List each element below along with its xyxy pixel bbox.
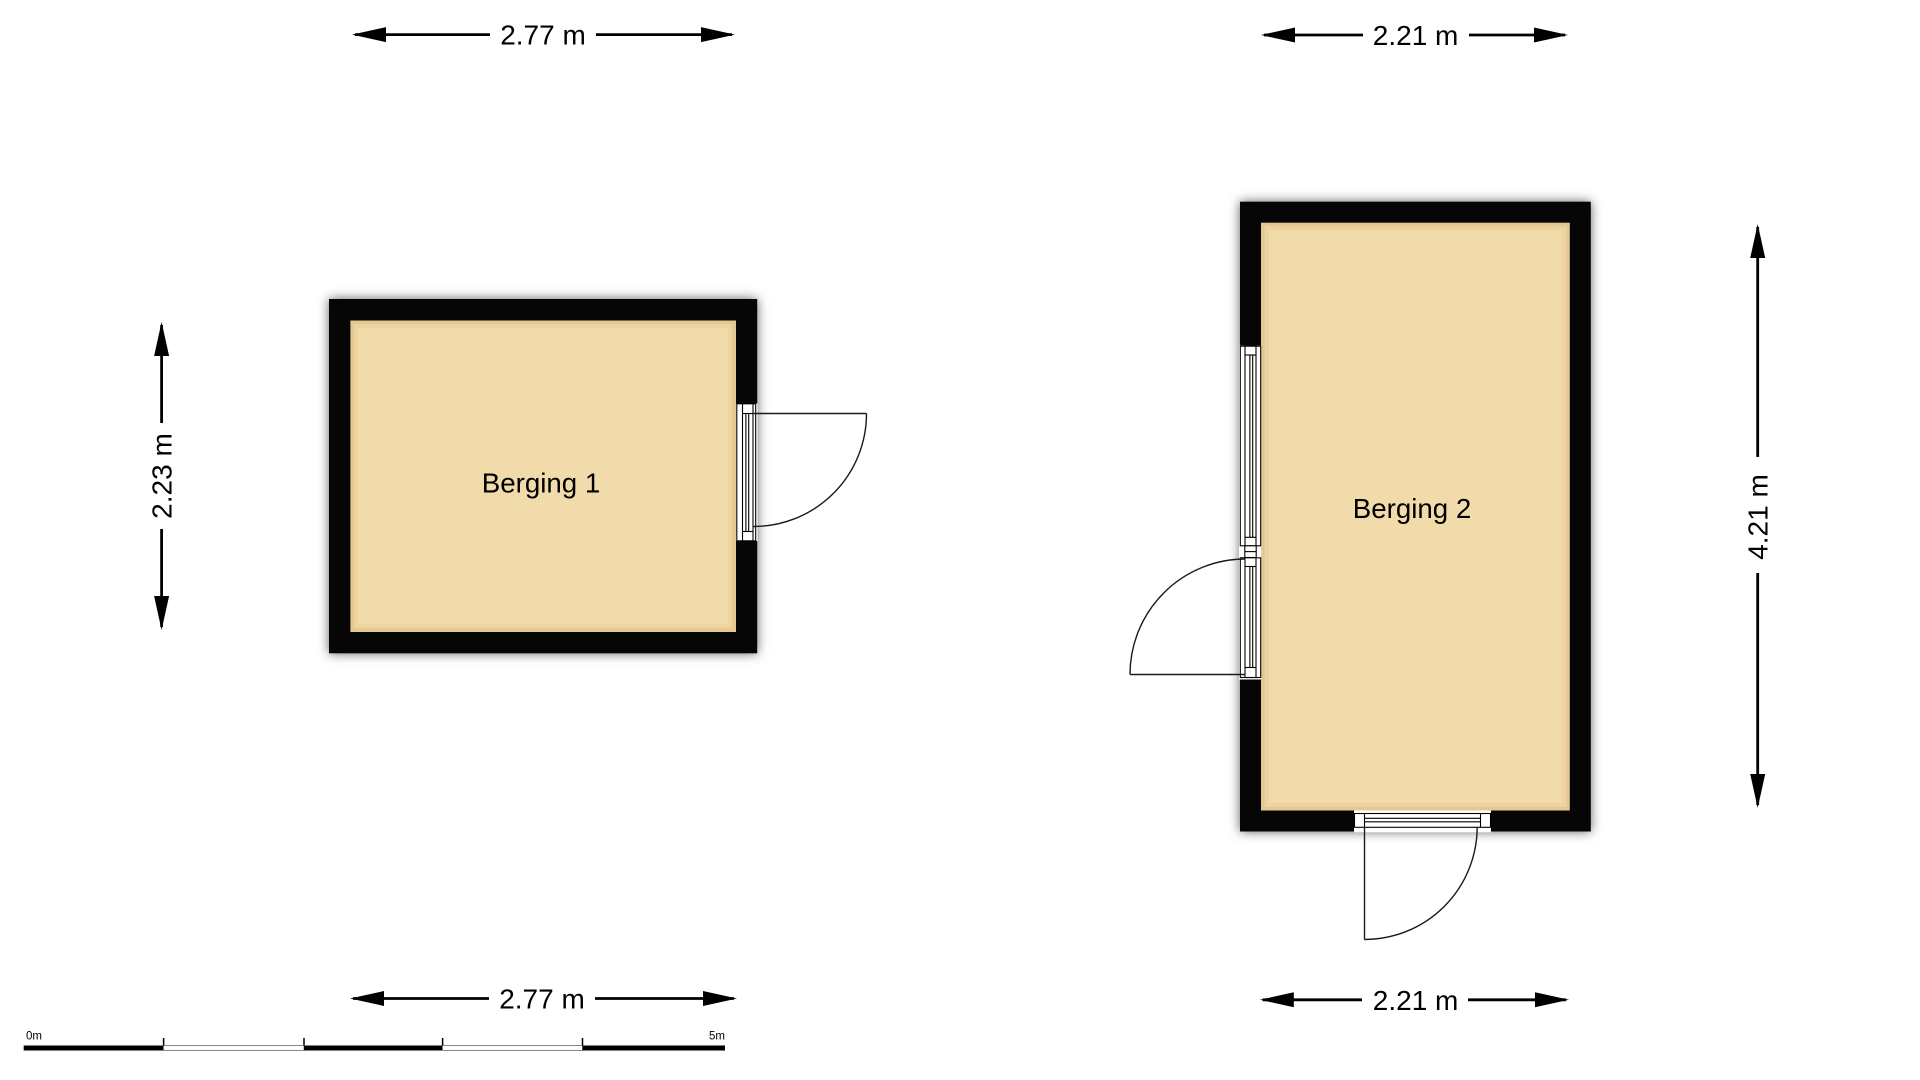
svg-text:2.23 m: 2.23 m [146,433,177,519]
svg-text:2.77 m: 2.77 m [500,20,586,51]
svg-text:Berging 1: Berging 1 [482,467,601,498]
svg-text:2.21 m: 2.21 m [1373,985,1459,1016]
svg-text:2.77 m: 2.77 m [499,984,585,1015]
svg-text:4.21 m: 4.21 m [1743,474,1774,560]
svg-text:5m: 5m [709,1031,725,1043]
svg-text:2.21 m: 2.21 m [1373,20,1459,51]
svg-text:Berging 2: Berging 2 [1353,493,1472,524]
svg-text:0m: 0m [26,1031,42,1043]
